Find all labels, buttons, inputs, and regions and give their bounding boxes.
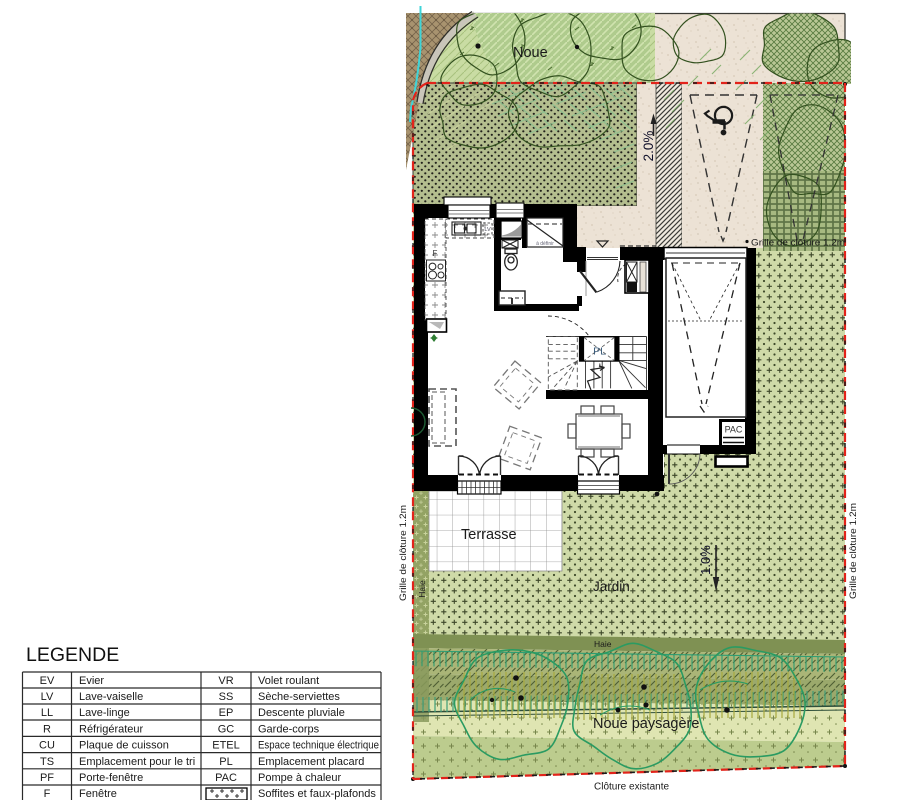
svg-text:Sèche-serviettes: Sèche-serviettes xyxy=(258,691,340,703)
svg-text:Grille de clôture 1.2m: Grille de clôture 1.2m xyxy=(751,238,845,248)
svg-text:VR: VR xyxy=(218,675,233,687)
svg-text:PL: PL xyxy=(219,756,232,768)
svg-text:LEGENDE: LEGENDE xyxy=(26,644,119,666)
svg-text:Espace technique électrique: Espace technique électrique xyxy=(258,740,379,752)
svg-text:Lave-vaiselle: Lave-vaiselle xyxy=(79,691,143,703)
svg-text:Pompe à chaleur: Pompe à chaleur xyxy=(258,772,341,784)
svg-text:Jardin: Jardin xyxy=(593,579,630,594)
svg-text:SS: SS xyxy=(219,691,234,703)
svg-text:Noue paysagère: Noue paysagère xyxy=(593,716,699,732)
svg-text:R: R xyxy=(43,723,51,735)
svg-text:LV: LV xyxy=(41,691,54,703)
svg-text:CU: CU xyxy=(39,740,55,752)
svg-text:F: F xyxy=(433,249,438,258)
svg-text:Terrasse: Terrasse xyxy=(461,527,517,543)
svg-text:Emplacement pour le tri: Emplacement pour le tri xyxy=(79,756,195,768)
svg-text:Lave-linge: Lave-linge xyxy=(79,707,130,719)
svg-text:LV: LV xyxy=(484,227,491,233)
svg-text:Clôture existante: Clôture existante xyxy=(594,782,669,793)
svg-text:Grille de clôture 1.2m: Grille de clôture 1.2m xyxy=(398,505,408,601)
svg-text:Haie: Haie xyxy=(417,580,427,598)
svg-text:Haie: Haie xyxy=(594,639,612,649)
svg-text:LL: LL xyxy=(41,707,53,719)
svg-text:Fenêtre: Fenêtre xyxy=(79,788,117,800)
svg-text:PAC: PAC xyxy=(725,425,743,435)
svg-text:Réfrigérateur: Réfrigérateur xyxy=(79,723,144,735)
svg-text:Emplacement placard: Emplacement placard xyxy=(258,756,364,768)
svg-text:F: F xyxy=(44,788,51,800)
svg-text:PF: PF xyxy=(40,772,54,784)
svg-text:à définir: à définir xyxy=(536,241,554,247)
svg-text:ETEL: ETEL xyxy=(212,740,240,752)
svg-text:Garde-corps: Garde-corps xyxy=(258,723,320,735)
svg-text:Plaque de cuisson: Plaque de cuisson xyxy=(79,740,169,752)
svg-text:Porte-fenêtre: Porte-fenêtre xyxy=(79,772,143,784)
svg-text:Noue: Noue xyxy=(513,45,548,61)
svg-text:PAC: PAC xyxy=(215,772,237,784)
svg-text:Soffites et faux-plafonds: Soffites et faux-plafonds xyxy=(258,788,376,800)
svg-text:PL: PL xyxy=(593,346,606,358)
svg-text:Volet roulant: Volet roulant xyxy=(258,675,319,687)
svg-text:TS: TS xyxy=(40,756,54,768)
svg-text:Evier: Evier xyxy=(79,675,104,687)
svg-text:GC: GC xyxy=(218,723,235,735)
svg-text:Descente pluviale: Descente pluviale xyxy=(258,707,345,719)
svg-text:EP: EP xyxy=(219,707,234,719)
svg-text:EV: EV xyxy=(40,675,55,687)
svg-text:Grille de clôture 1.2m: Grille de clôture 1.2m xyxy=(848,503,858,599)
svg-text:1.0%: 1.0% xyxy=(698,545,713,575)
